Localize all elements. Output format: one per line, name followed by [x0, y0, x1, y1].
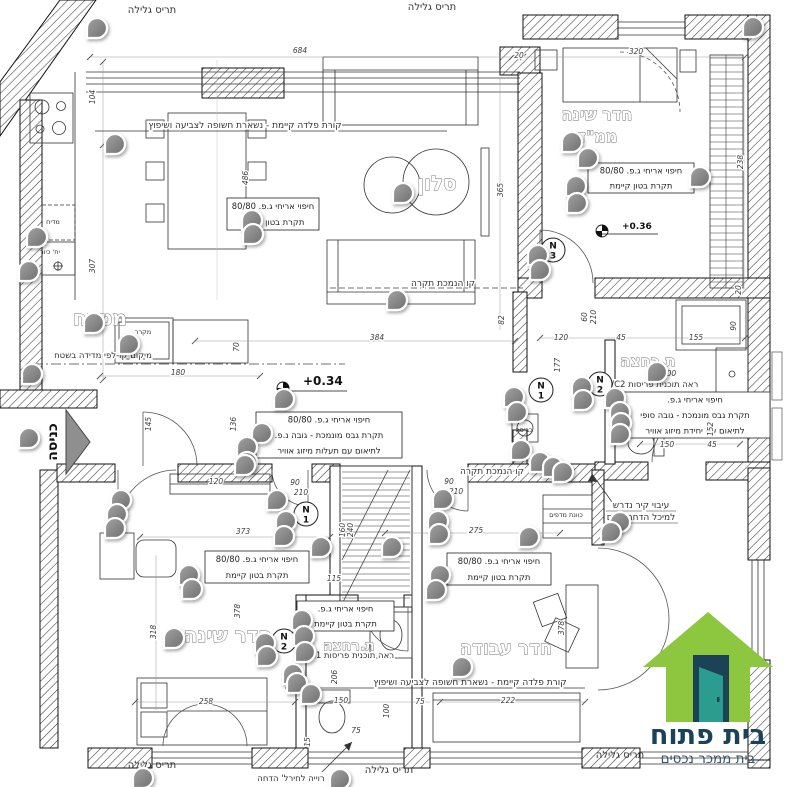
note-label: תריס גלילה — [365, 765, 413, 776]
note-label: מיקום קו-לפי מדידה בשטח — [54, 351, 152, 361]
dimension-label: 684 — [293, 46, 308, 55]
dimension-label: 177 — [553, 358, 562, 373]
annotation-line: חיפוי אריחי ג.פ. 80/80 — [232, 201, 314, 211]
photo-pin[interactable] — [267, 490, 287, 510]
photo-pin[interactable] — [133, 768, 153, 787]
photo-pin[interactable] — [690, 167, 710, 187]
note-label: עיבוי קיר נדרש — [613, 501, 670, 511]
annotation-line: חיפוי אריחי ג.פ. — [667, 395, 723, 405]
dimension-label: 120 — [554, 333, 569, 342]
photo-pin[interactable] — [511, 440, 531, 460]
dimension-label: 70 — [232, 342, 241, 352]
photo-pin[interactable] — [257, 646, 277, 666]
dimension-label: 150 — [660, 440, 675, 449]
entrance-label: כניסה — [45, 423, 61, 461]
photo-pin[interactable] — [426, 580, 446, 600]
dimension-label: 90 — [444, 477, 454, 486]
photo-pin[interactable] — [22, 364, 42, 384]
photo-pin[interactable] — [573, 390, 593, 410]
photo-pin[interactable] — [19, 261, 39, 281]
annotation-line: תקרת גבס מונמכת - גובה נ.פ. — [275, 430, 384, 440]
annotation-line: חיפוי אריחי ג.פ. 80/80 — [458, 556, 540, 566]
photo-pin[interactable] — [387, 290, 407, 310]
photo-pin[interactable] — [553, 462, 573, 482]
dimension-label: 104 — [88, 90, 97, 105]
annotation-box: חיפוי אריחי ג.פ. 80/80תקרת גבס מונמכת - … — [256, 412, 402, 458]
n-marker-1: N1 — [294, 502, 318, 526]
dimension-label: 100 — [382, 704, 391, 719]
dimension-label: 275 — [469, 526, 484, 535]
photo-pin[interactable] — [562, 132, 582, 152]
annotation-line: חיפוי אריחי ג.פ. 80/80 — [216, 554, 298, 564]
annotation-box: חיפוי אריחי ג.פ.תקרת גבס מונמכת - גובה ס… — [620, 392, 770, 438]
photo-pin[interactable] — [567, 193, 587, 213]
dimension-label: 210 — [589, 310, 598, 325]
photo-pin[interactable] — [274, 526, 294, 546]
dimension-label: 210 — [294, 488, 309, 497]
logo-subtitle: בית ממכר נכסים — [661, 751, 756, 767]
logo-title: בית פתוח — [650, 720, 766, 751]
photo-pin[interactable] — [164, 628, 184, 648]
dimension-label: 120 — [209, 477, 224, 486]
dimension-label: 75 — [351, 726, 361, 735]
photo-pin[interactable] — [601, 522, 621, 542]
n-marker-1: N1 — [529, 378, 553, 402]
photo-pin[interactable] — [507, 402, 527, 422]
note-label: קו הנמכת תקרה — [411, 279, 475, 289]
dimension-label: 20 — [514, 51, 524, 60]
photo-pin[interactable] — [105, 518, 125, 538]
dimension-label: 378 — [233, 604, 242, 619]
level-value: +0.34 — [303, 374, 343, 388]
closet-shelves — [710, 55, 743, 288]
dimension-label: 320 — [629, 47, 644, 56]
dimension-label: 318 — [149, 625, 158, 640]
photo-pin[interactable] — [382, 537, 402, 557]
floor-plan-canvas: חיפוי אריחי ג.פ. 80/80תקרת בטון קיימתחיפ… — [0, 0, 788, 787]
annotation-box: חיפוי אריחי ג.פ. 80/80תקרת בטון קיימת — [588, 163, 694, 193]
sofa-top — [323, 57, 478, 125]
annotation-line: לתיאום עם יחידת מיזוג אוויר — [645, 425, 745, 435]
dimension-label: 206 — [330, 670, 339, 685]
dimension-label: 20 — [734, 285, 743, 295]
dimension-label: 240 — [346, 523, 355, 538]
annotation-line: חיפוי אריחי ג.פ. 80/80 — [288, 415, 370, 425]
dimension-label: 180 — [171, 368, 186, 377]
tv-unit — [481, 148, 489, 236]
photo-pin[interactable] — [519, 527, 539, 547]
annotation-box: חיפוי אריחי ג.פ. 80/80תקרת בטון קיימת — [227, 198, 319, 230]
dimension-label: 60 — [580, 312, 589, 322]
dimension-label: 45 — [616, 333, 626, 342]
n-marker-letter: N — [280, 633, 288, 643]
bed-mamad — [563, 48, 677, 102]
note-label: קורת פלדה קיימת - נשארת חשופה לצביעה ושי… — [373, 678, 566, 688]
photo-pin[interactable] — [610, 424, 630, 444]
note-label: קו הנמכת תקרה — [460, 467, 524, 477]
room-label: ת.רחצה — [323, 638, 375, 654]
note-label: מקרר — [135, 328, 151, 336]
annotation-line: חיפוי אריחי ג.פ. — [318, 604, 374, 614]
dimension-label: 486 — [241, 171, 250, 186]
note-label: רוייה לחירל' הדחה — [257, 774, 325, 784]
dimension-label: 373 — [236, 527, 251, 536]
work-desk — [566, 585, 598, 668]
dimension-label: 365 — [496, 183, 505, 198]
dimension-label: 136 — [229, 417, 238, 432]
dimension-label: 222 — [501, 696, 516, 705]
photo-pin[interactable] — [27, 227, 47, 247]
annotation-line: תקרת בטון קיימת — [610, 181, 673, 191]
level-symbol-fill — [596, 231, 602, 237]
leader-arrowhead — [344, 742, 352, 751]
n-marker-number: 2 — [597, 386, 603, 396]
photo-pin[interactable] — [433, 489, 453, 509]
dimension-label: 155 — [689, 333, 704, 342]
annotation-line: תקרת גבס מונמכת - גובה סופי — [640, 410, 750, 420]
note-label: מדיח — [46, 218, 60, 226]
note-label: תריס גלילה — [128, 760, 176, 771]
photo-pin[interactable] — [243, 224, 263, 244]
dimension-label: 90 — [729, 321, 738, 331]
dimension-label: 15 — [303, 737, 312, 747]
dimension-label: 238 — [736, 155, 745, 170]
note-label: תריס גלילה — [408, 2, 456, 13]
n-marker-letter: N — [302, 506, 310, 516]
annotation-line: תקרת בטון קיימת — [314, 619, 377, 629]
annotation-line: לתיאום עם תעלות מיזוג אוויר — [277, 445, 381, 455]
annotation-line: תקרת בטון קיימת — [468, 572, 531, 582]
annotation-line: תקרת בטון קיימת — [226, 570, 289, 580]
photo-pin[interactable] — [182, 579, 202, 599]
dimension-label: 45 — [707, 440, 717, 449]
photo-pin[interactable] — [429, 524, 449, 544]
note-label: כוונת מדפים — [549, 511, 583, 519]
annotation-box: חיפוי אריחי ג.פ. 80/80תקרת בטון קיימת — [205, 551, 309, 583]
dimension-label: 115 — [327, 574, 342, 583]
note-label: תריס גלילה — [128, 5, 176, 16]
desk — [100, 533, 134, 579]
room-label: חדר עבודה — [460, 638, 552, 659]
dimension-label: 152 — [706, 422, 715, 437]
room-label: חדר שינה — [562, 105, 633, 124]
annotation-box: חיפוי אריחי ג.פ. 80/80תקרת בטון קיימת — [447, 553, 551, 585]
note-label: קורת פלדה קיימת - נשארת חשופה לצביעה ושי… — [148, 121, 341, 131]
photo-pin[interactable] — [84, 313, 104, 333]
dimension-label: 75 — [415, 697, 425, 706]
photo-pin[interactable] — [301, 684, 321, 704]
level-marker: +0.36 — [596, 222, 658, 237]
annotation-line: חיפוי אריחי ג.פ. 80/80 — [600, 166, 682, 176]
level-symbol-fill — [602, 225, 608, 231]
dimension-label: 307 — [88, 259, 97, 274]
n-marker-number: 1 — [538, 392, 544, 402]
room-label: סלון — [417, 171, 456, 195]
photo-pin[interactable] — [393, 183, 413, 203]
photo-pin[interactable] — [19, 428, 39, 448]
closet-frame — [710, 55, 743, 288]
dimension-label: 378 — [557, 621, 566, 636]
photo-pin[interactable] — [743, 17, 763, 37]
bed — [137, 678, 267, 745]
photo-pin[interactable] — [235, 455, 255, 475]
n-marker-number: 1 — [303, 516, 309, 526]
photo-pin[interactable] — [578, 148, 598, 168]
n-marker-letter: N — [537, 382, 545, 392]
n-marker-number: 2 — [281, 643, 287, 653]
photo-pin[interactable] — [647, 362, 667, 382]
photo-pin[interactable] — [530, 260, 550, 280]
dimension-label: 384 — [370, 333, 385, 342]
logo-door-handle — [717, 697, 720, 702]
photo-pin[interactable] — [274, 389, 294, 409]
dimension-label: 90 — [290, 478, 300, 487]
note-label: תריס גלילה — [596, 750, 644, 761]
photo-pin[interactable] — [311, 537, 331, 557]
dimension-label: 145 — [144, 417, 153, 432]
photo-pin[interactable] — [330, 769, 350, 787]
photo-pin[interactable] — [452, 657, 472, 677]
photo-pin[interactable] — [87, 18, 107, 38]
note-label: יח' כיור — [40, 248, 60, 256]
photo-pin[interactable] — [119, 334, 139, 354]
dimension-label: 258 — [199, 697, 214, 706]
note-label: כביסה — [515, 426, 533, 434]
toilet — [319, 701, 345, 733]
photo-pin[interactable] — [105, 134, 125, 154]
photo-pin[interactable] — [295, 642, 315, 662]
lower-counter — [173, 320, 248, 363]
dimension-label: 82 — [497, 315, 506, 325]
n-marker-number: 3 — [550, 252, 556, 262]
level-value: +0.36 — [622, 222, 652, 232]
logo-door-leaf — [699, 667, 723, 722]
n-marker-letter: N — [596, 376, 604, 386]
n-marker-letter: N — [549, 242, 557, 252]
level-symbol-fill — [283, 382, 289, 388]
dimension-label: 150 — [334, 696, 349, 705]
